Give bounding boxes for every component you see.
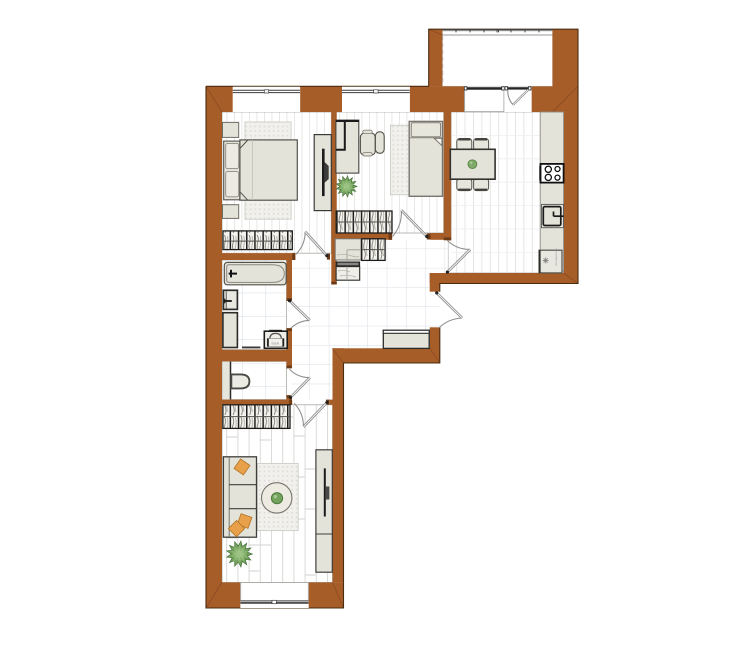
svg-text:холодильник: холодильник	[554, 247, 558, 266]
svg-text:Bauk: Bauk	[272, 342, 280, 346]
